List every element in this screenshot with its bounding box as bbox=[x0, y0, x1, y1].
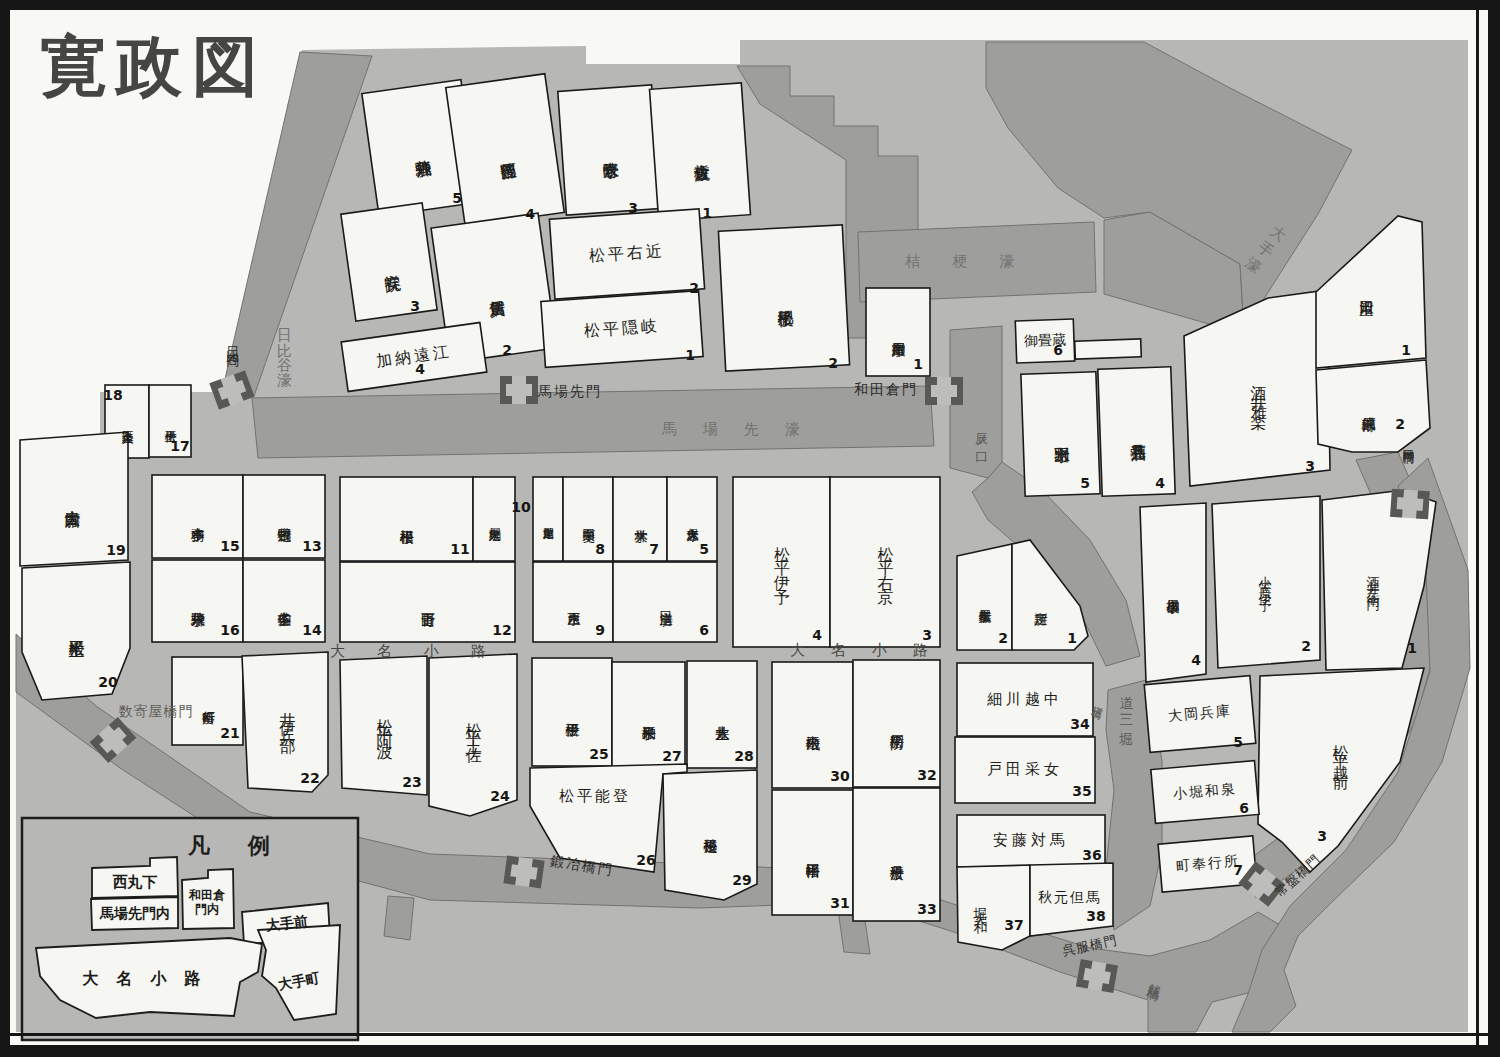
block-denso-yashiki bbox=[957, 544, 1012, 650]
block-matsudaira-inaba bbox=[772, 790, 853, 915]
block-kura-strip bbox=[1075, 339, 1142, 359]
block-mizoguchi-shuzen bbox=[613, 562, 717, 642]
block-matsudaira-tanba bbox=[853, 788, 940, 921]
block-akimoto-tajima bbox=[1030, 863, 1113, 936]
block-matsudaira-sagami bbox=[340, 477, 473, 561]
babasaki-moat bbox=[252, 386, 934, 458]
block-shirasu-kai bbox=[563, 477, 613, 561]
block-matsudaira-awa bbox=[340, 656, 427, 795]
block-aoyama-shimotsuke bbox=[340, 562, 515, 642]
block-matsudaira-kura bbox=[772, 662, 853, 788]
legend-item-wadakuramon-nai: 和田倉門内 bbox=[184, 889, 230, 917]
kandabashi-gate-icon bbox=[1390, 489, 1430, 520]
frame-right-thin bbox=[1476, 0, 1479, 1057]
block-makino-etchu bbox=[243, 475, 325, 558]
frame-left bbox=[0, 0, 10, 1057]
frame-right-thick bbox=[1488, 0, 1500, 1057]
block-matsudaira-higo bbox=[718, 225, 849, 371]
block-honda-hoki bbox=[243, 560, 325, 642]
block-okubo-shima bbox=[667, 477, 717, 561]
block-machibugyosho-21 bbox=[172, 657, 243, 745]
block-kobori-izumi bbox=[1151, 761, 1259, 824]
block-gohason-goya bbox=[1140, 503, 1206, 682]
legend-title: 凡例 bbox=[150, 833, 308, 858]
block-toda-uneme bbox=[955, 737, 1095, 803]
legend-item-daimyo-koji: 大名小路 bbox=[78, 970, 223, 988]
legend-item-nishimaru-shita: 西丸下 bbox=[100, 874, 170, 891]
block-jobikeshi-yashiki-w bbox=[473, 477, 515, 561]
block-matsudaira-oki bbox=[541, 291, 703, 368]
block-matsudaira-tonomo-n20 bbox=[22, 562, 130, 700]
block-hori-yamato bbox=[957, 865, 1030, 950]
block-aoyama-daizen bbox=[20, 432, 128, 566]
block-otatami-gura bbox=[1015, 319, 1074, 363]
block-ii-hyobu bbox=[242, 652, 328, 792]
block-matsudaira-iyo bbox=[733, 477, 830, 647]
block-goyo-yashiki bbox=[866, 288, 930, 376]
paper-top-margin bbox=[740, 16, 1468, 40]
block-ando-tsushima bbox=[957, 815, 1105, 867]
block-matsudaira-tosa-n24 bbox=[429, 654, 517, 816]
block-matsudaira-izumi bbox=[612, 662, 685, 768]
map-title: 寛政図 bbox=[40, 22, 268, 112]
block-matsudaira-suo bbox=[853, 660, 940, 787]
block-matsudaira-izu bbox=[532, 658, 612, 766]
block-abe-bungo bbox=[446, 74, 565, 227]
block-matsudaira-tosa-n17 bbox=[149, 385, 191, 457]
block-ansho-in bbox=[341, 203, 437, 321]
block-jobikeshi-yashiki-e bbox=[533, 477, 563, 561]
block-doi-oi bbox=[687, 661, 757, 768]
block-matsudaira-ukon bbox=[549, 209, 704, 299]
block-nagai-hida bbox=[152, 560, 243, 642]
block-ooka-hyogo bbox=[1144, 676, 1256, 753]
block-hosokawa-etchu bbox=[957, 663, 1093, 736]
kajibashi-gate-icon bbox=[503, 855, 545, 888]
block-matsudaira-echigo bbox=[663, 770, 757, 900]
legend-item-babasakimon-nai: 馬場先門内 bbox=[97, 906, 173, 922]
block-mizuno-iki bbox=[558, 85, 660, 215]
block-ogasawara-iyo bbox=[1212, 496, 1320, 668]
block-mizuno-dewa bbox=[1021, 372, 1100, 497]
block-sakakibara-shikibu bbox=[1316, 360, 1430, 452]
kansei-map: 寛政図 凡例 西丸下 馬場先門内 和田倉門内 大手前 大名小路 大手町 酒井飛騨… bbox=[0, 0, 1500, 1057]
block-honda-nakatsukasa bbox=[152, 475, 243, 558]
block-matsudaira-ukyo bbox=[830, 477, 940, 647]
block-sakai-iwami bbox=[1098, 367, 1175, 496]
bridge-stub-west bbox=[384, 896, 414, 940]
babasaki-gate-icon bbox=[500, 376, 538, 404]
wadakura-gate-icon bbox=[925, 377, 963, 405]
frame-bottom-thick bbox=[0, 1045, 1500, 1057]
block-nishio-mondo bbox=[533, 562, 613, 642]
frame-top bbox=[0, 0, 1500, 10]
frame-bottom-thin bbox=[0, 1033, 1500, 1036]
block-hayashi-daigaku bbox=[613, 477, 667, 561]
block-itakura-sado bbox=[650, 83, 751, 221]
